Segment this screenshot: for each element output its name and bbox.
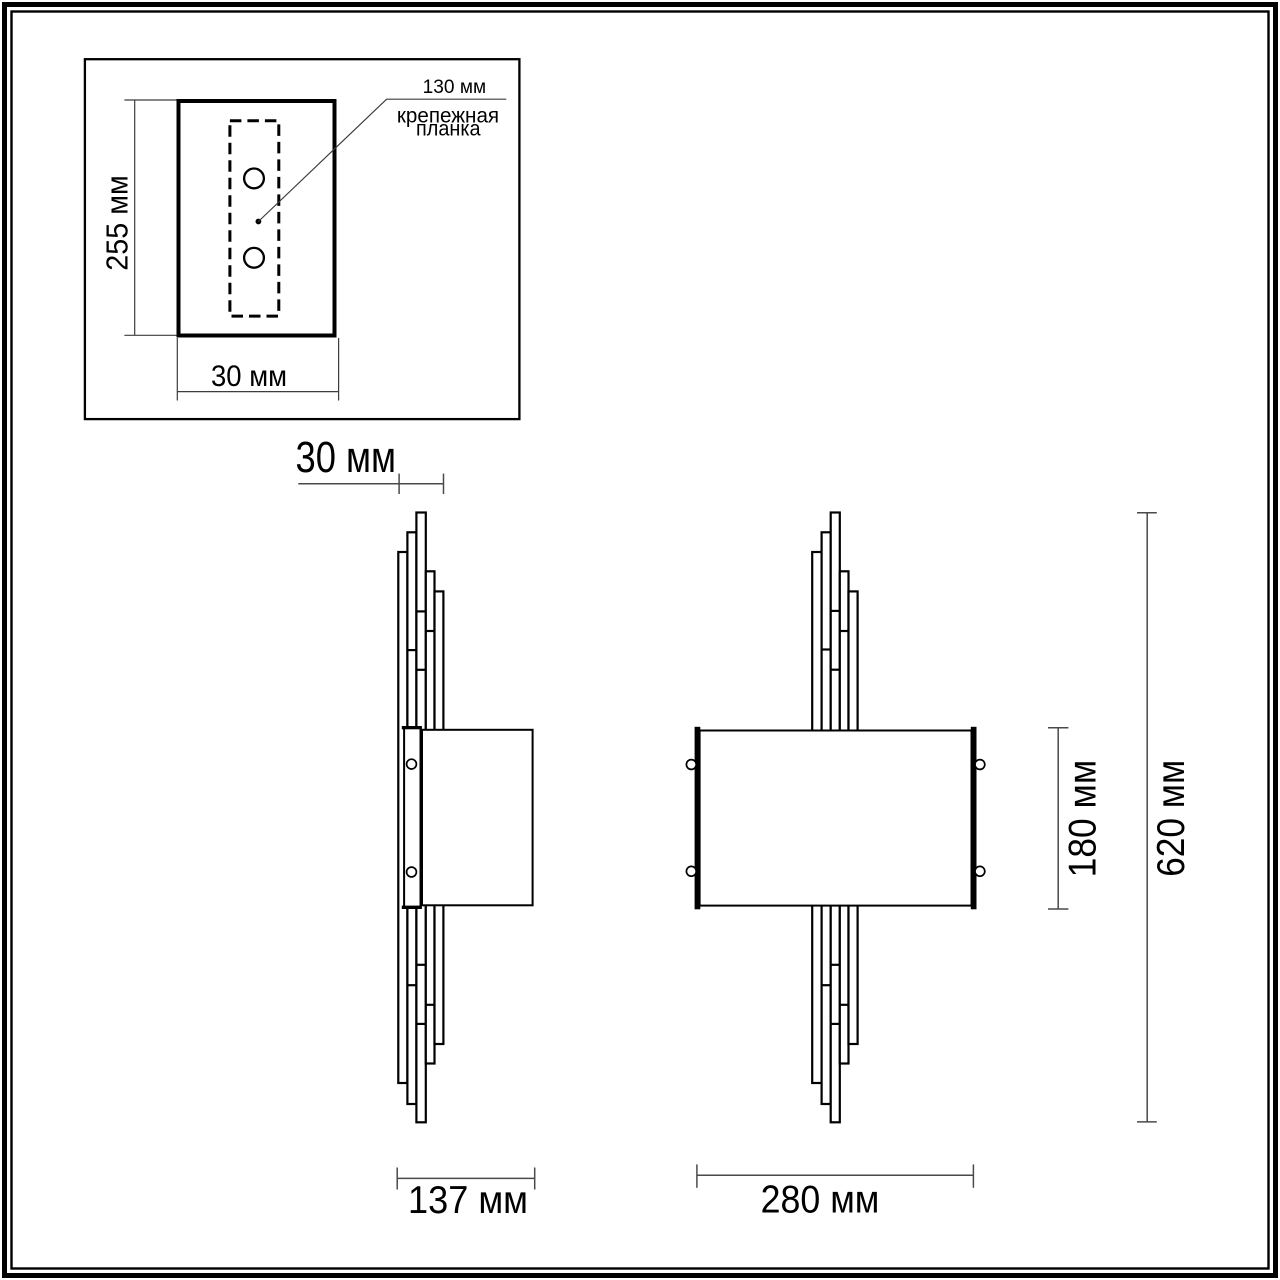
svg-text:137 мм: 137 мм [408,1179,528,1222]
svg-text:30 мм: 30 мм [211,360,287,393]
svg-text:30 мм: 30 мм [296,433,397,482]
svg-text:180 мм: 180 мм [1061,760,1104,878]
svg-text:620 мм: 620 мм [1150,760,1193,877]
svg-text:планка: планка [416,118,481,141]
svg-text:130 мм: 130 мм [423,77,486,98]
svg-text:255 мм: 255 мм [99,175,134,271]
svg-text:280 мм: 280 мм [761,1179,880,1222]
